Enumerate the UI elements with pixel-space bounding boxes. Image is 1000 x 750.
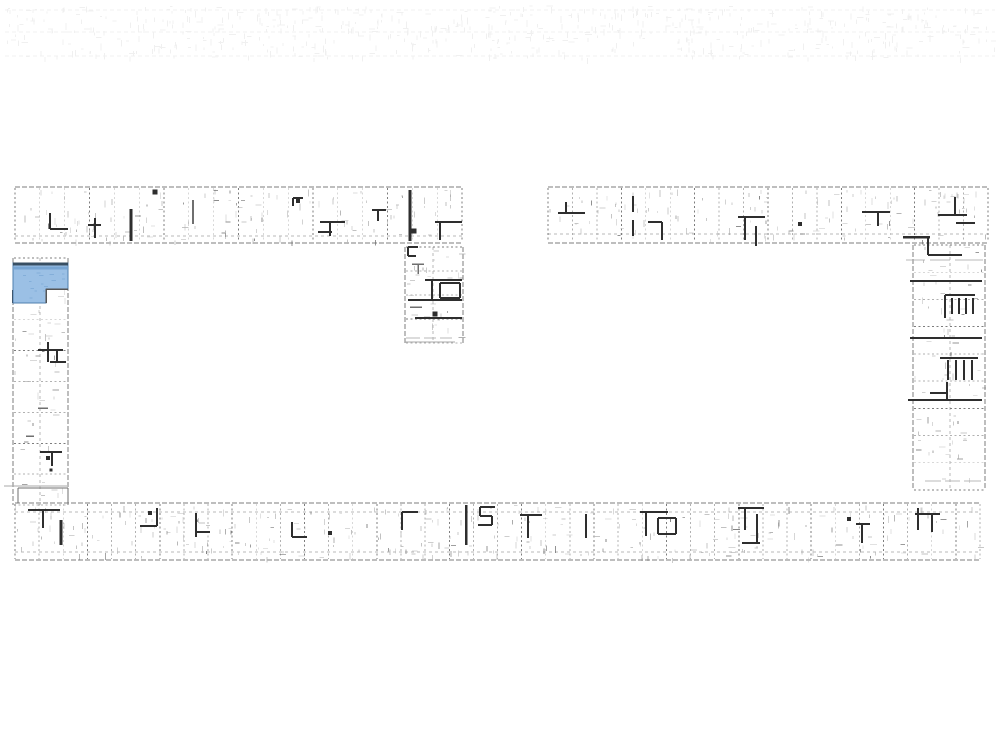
floorplan-drawing [0, 0, 1000, 750]
wing-mid-column [405, 247, 466, 343]
wing-top-left [15, 187, 462, 246]
floorplan-page [0, 0, 1000, 750]
wing-bottom [15, 503, 984, 563]
ghost-plan-strip [5, 6, 996, 64]
micro-annotation-marks [406, 260, 983, 481]
